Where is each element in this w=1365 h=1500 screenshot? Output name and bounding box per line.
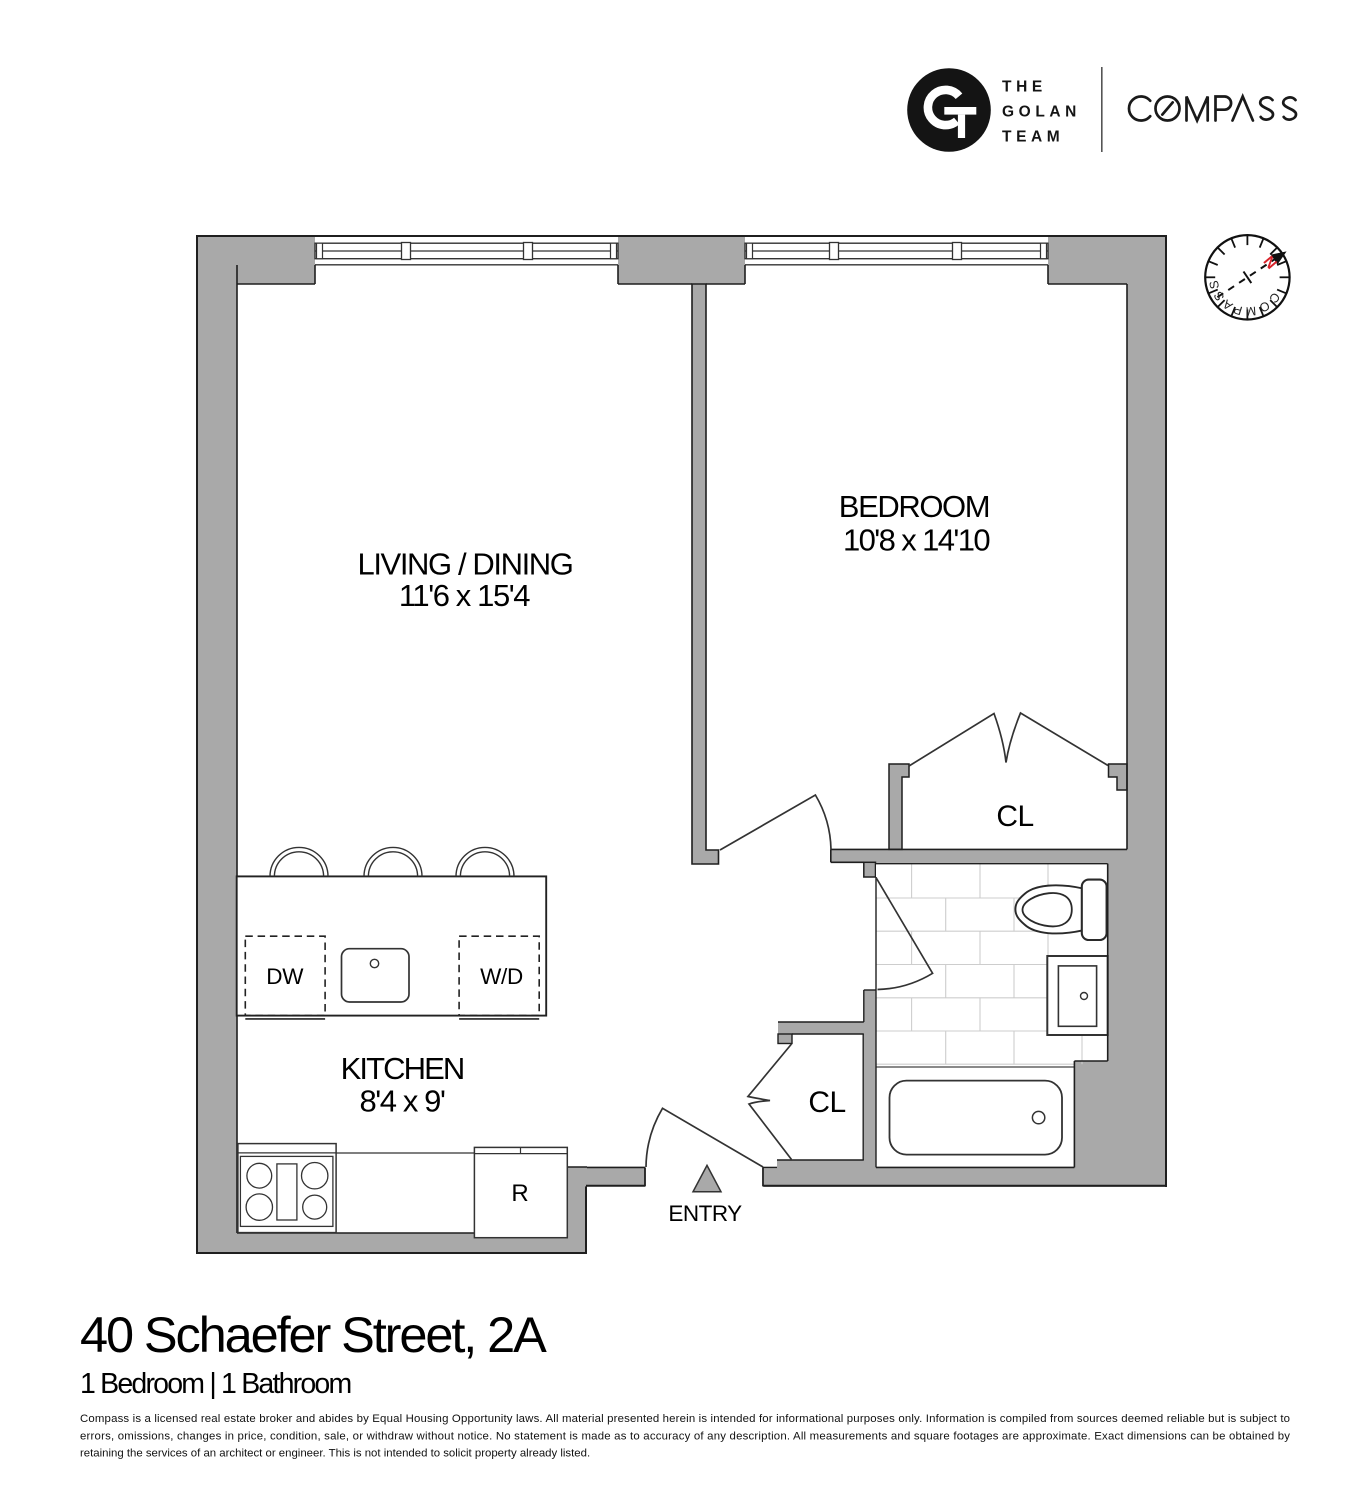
svg-text:CL: CL: [996, 800, 1033, 833]
svg-text:R: R: [511, 1180, 528, 1207]
svg-text:KITCHEN: KITCHEN: [341, 1051, 464, 1086]
svg-text:retaining the services of an a: retaining the services of an architect o…: [80, 1448, 590, 1460]
svg-text:LIVING / DINING: LIVING / DINING: [358, 547, 573, 582]
svg-text:ENTRY: ENTRY: [668, 1201, 742, 1226]
svg-text:10'8 x 14'10: 10'8 x 14'10: [843, 523, 990, 558]
svg-text:TEAM: TEAM: [1002, 129, 1064, 146]
svg-text:8'4 x 9': 8'4 x 9': [359, 1084, 445, 1119]
svg-text:CL: CL: [808, 1086, 845, 1119]
svg-text:W/D: W/D: [480, 964, 523, 989]
svg-text:Compass is a licensed real est: Compass is a licensed real estate broker…: [80, 1413, 1290, 1425]
svg-text:BEDROOM: BEDROOM: [839, 489, 989, 524]
svg-text:DW: DW: [266, 964, 304, 989]
svg-text:40 Schaefer Street, 2A: 40 Schaefer Street, 2A: [80, 1306, 547, 1363]
svg-text:THE: THE: [1002, 79, 1047, 96]
svg-text:GOLAN: GOLAN: [1002, 104, 1081, 121]
svg-text:errors, omissions, changes in: errors, omissions, changes in price, con…: [80, 1430, 1290, 1442]
svg-text:1 Bedroom | 1 Bathroom: 1 Bedroom | 1 Bathroom: [80, 1368, 350, 1400]
svg-text:11'6 x 15'4: 11'6 x 15'4: [399, 578, 530, 613]
